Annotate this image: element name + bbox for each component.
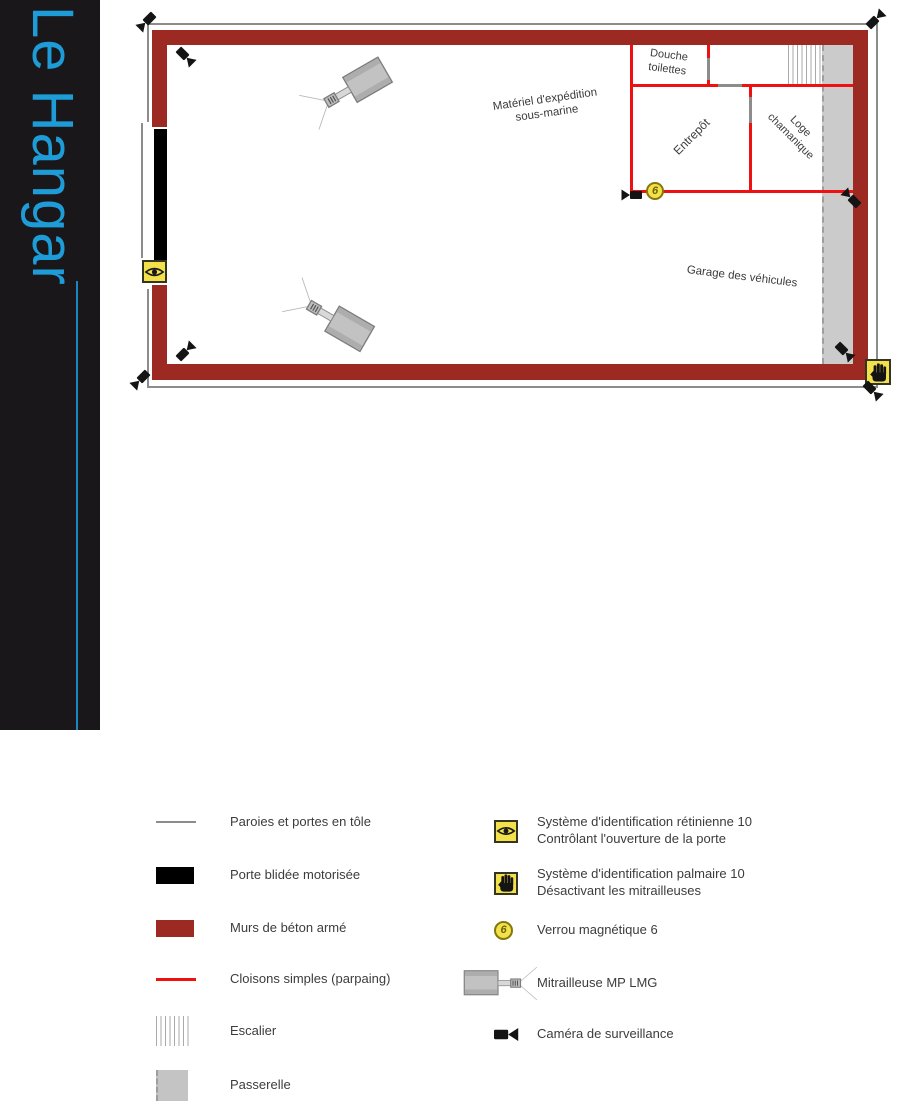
tole-outline-bottom	[147, 386, 878, 388]
tole-door-entrepot	[718, 84, 742, 87]
legend-label: Mitrailleuse MP LMG	[537, 975, 657, 992]
legend-label: Caméra de surveillance	[537, 1026, 674, 1043]
legend-label: Paroies et portes en tôle	[230, 814, 371, 831]
machine-gun-icon	[296, 44, 401, 136]
magnetic-lock-6: 6	[494, 921, 513, 940]
partition-vertical-left	[630, 45, 633, 192]
stairs-swatch	[156, 1016, 189, 1046]
legend: Paroies et portes en tôle Porte blidée m…	[0, 400, 900, 730]
wall-left-bottom	[152, 285, 167, 380]
partition-swatch	[156, 978, 196, 981]
escalier-area	[788, 45, 822, 84]
walkway-swatch	[156, 1070, 188, 1101]
legend-label: Passerelle	[230, 1077, 291, 1094]
camera-icon	[173, 338, 198, 363]
legend-item-porte-blindee: Porte blidée motorisée	[156, 863, 476, 887]
machine-gun-icon	[462, 961, 537, 1006]
camera-icon	[863, 6, 888, 31]
legend-label: Porte blidée motorisée	[230, 867, 360, 884]
tole-door-loge	[749, 97, 752, 123]
room-label-loge: Loge chamanique	[764, 101, 826, 163]
tole-outline-left-top	[147, 23, 149, 122]
legend-item-mitrailleuse: Mitrailleuse MP LMG	[474, 960, 874, 1007]
legend-item-escalier: Escalier	[156, 1016, 476, 1046]
legend-label: Cloisons simples (parpaing)	[230, 971, 390, 988]
porte-blindee	[154, 129, 167, 262]
wall-left-top	[152, 30, 167, 127]
lock-badge: 6	[500, 924, 506, 936]
retina-scanner-box	[494, 820, 518, 843]
tole-swatch	[156, 821, 196, 823]
room-label-douche: Douche toilettes	[648, 47, 689, 79]
wall-bottom	[152, 364, 868, 380]
room-label-entrepot: Entrepôt	[671, 116, 714, 159]
eye-icon	[144, 262, 165, 282]
room-label-materiel: Matériel d'expédition sous-marine	[492, 85, 600, 128]
eye-icon	[496, 821, 516, 841]
armored-door-swatch	[156, 867, 194, 884]
legend-label: Escalier	[230, 1023, 276, 1040]
floor-plan: 6 Douche toilettes Matériel d'expédition…	[0, 0, 900, 400]
legend-item-verrou: 6 Verrou magnétique 6	[494, 918, 874, 942]
legend-item-palmaire: Système d'identification palmaire 10 Dés…	[494, 866, 874, 900]
legend-label: Système d'identification palmaire 10 Dés…	[537, 866, 745, 900]
camera-icon	[494, 1026, 520, 1043]
retina-scanner-box	[142, 260, 167, 283]
legend-item-cloisons: Cloisons simples (parpaing)	[156, 967, 476, 991]
magnetic-lock-6: 6	[646, 182, 664, 200]
legend-item-murs-beton: Murs de béton armé	[156, 916, 476, 940]
camera-icon	[620, 188, 642, 202]
tole-door-pocket	[141, 123, 143, 258]
tole-outline-top	[147, 23, 878, 25]
legend-label: Système d'identification rétinienne 10 C…	[537, 814, 752, 848]
lock-badge: 6	[652, 185, 658, 197]
tole-outline-right	[876, 23, 878, 388]
legend-item-retinienne: Système d'identification rétinienne 10 C…	[494, 814, 874, 848]
tole-door-douche	[707, 58, 710, 80]
legend-item-passerelle: Passerelle	[156, 1070, 476, 1101]
concrete-wall-swatch	[156, 920, 194, 937]
palm-scanner-box	[494, 872, 518, 895]
legend-label: Verrou magnétique 6	[537, 922, 658, 939]
machine-gun-icon	[279, 271, 384, 363]
camera-icon	[173, 44, 198, 69]
legend-item-tole: Paroies et portes en tôle	[156, 810, 476, 834]
room-label-garage: Garage des véhicules	[686, 263, 798, 291]
legend-item-camera: Caméra de surveillance	[494, 1022, 874, 1046]
wall-top	[152, 30, 868, 45]
hand-icon	[496, 873, 516, 893]
legend-label: Murs de béton armé	[230, 920, 346, 937]
